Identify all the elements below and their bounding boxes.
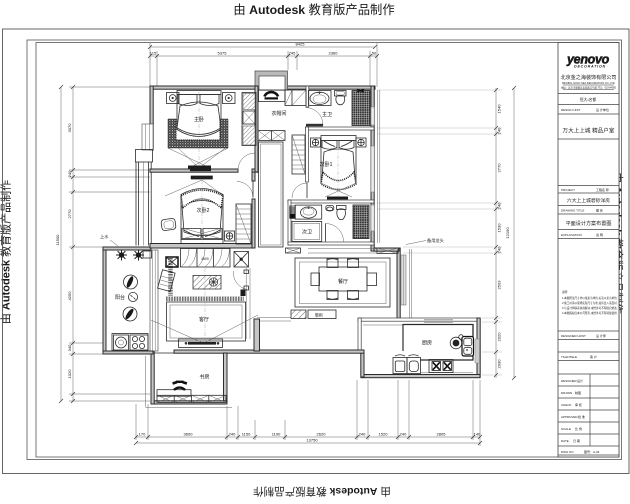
svg-text:APPROVED: APPROVED bbox=[561, 415, 579, 419]
svg-text:DESIGN UNIT: DESIGN UNIT bbox=[561, 108, 581, 112]
svg-text:工程名 称: 工程名 称 bbox=[596, 187, 609, 192]
svg-text:EXPLANATION: EXPLANATION bbox=[561, 233, 582, 237]
svg-text:BEIJING GOLD SEA DECORATION CO: BEIJING GOLD SEA DECORATION CO.,LTD bbox=[562, 81, 615, 85]
svg-text:审 核: 审 核 bbox=[575, 402, 582, 407]
svg-text:DESIGNER: DESIGNER bbox=[561, 379, 578, 383]
svg-text:240: 240 bbox=[400, 432, 407, 437]
svg-text:2360: 2360 bbox=[329, 51, 339, 56]
svg-text:六大上上城碧砂洋房: 六大上上城碧砂洋房 bbox=[567, 197, 610, 204]
svg-text:13750: 13750 bbox=[306, 438, 318, 443]
svg-text:240: 240 bbox=[497, 246, 502, 253]
svg-text:240: 240 bbox=[359, 432, 366, 437]
svg-text:115: 115 bbox=[150, 51, 157, 56]
svg-text:CHECK: CHECK bbox=[561, 403, 572, 407]
svg-text:次卫: 次卫 bbox=[302, 229, 312, 236]
svg-text:说 明: 说 明 bbox=[596, 232, 603, 237]
svg-text:由 Autodesk 教育版产品制作: 由 Autodesk 教育版产品制作 bbox=[0, 180, 13, 324]
svg-text:由 Autodesk 教育版产品制作: 由 Autodesk 教育版产品制作 bbox=[253, 485, 391, 498]
svg-text:恒大•名都: 恒大•名都 bbox=[580, 97, 597, 102]
svg-text:4600: 4600 bbox=[201, 257, 209, 261]
svg-text:DESIGNER HOST: DESIGNER HOST bbox=[561, 334, 586, 338]
svg-text:3070: 3070 bbox=[67, 123, 72, 133]
svg-text:主卧: 主卧 bbox=[194, 116, 204, 123]
svg-text:2805: 2805 bbox=[437, 432, 447, 437]
svg-text:2770: 2770 bbox=[497, 163, 502, 173]
svg-text:比 例: 比 例 bbox=[575, 426, 582, 431]
svg-text:主卫: 主卫 bbox=[322, 111, 332, 118]
svg-text:1540: 1540 bbox=[497, 104, 502, 114]
svg-text:3600: 3600 bbox=[184, 432, 194, 437]
svg-text:140: 140 bbox=[474, 432, 481, 437]
svg-text:2770: 2770 bbox=[67, 209, 72, 219]
svg-text:340: 340 bbox=[67, 344, 72, 351]
svg-text:餐厅: 餐厅 bbox=[338, 278, 348, 285]
svg-text:说明:: 说明: bbox=[562, 290, 568, 294]
svg-text:240: 240 bbox=[497, 202, 502, 209]
svg-text:平面设计方案布置图: 平面设计方案布置图 bbox=[566, 220, 612, 227]
svg-text:1020: 1020 bbox=[67, 369, 72, 379]
svg-text:1190: 1190 bbox=[272, 432, 281, 437]
svg-text:50: 50 bbox=[372, 51, 377, 56]
svg-text:1530: 1530 bbox=[497, 223, 502, 233]
svg-text:次卧2: 次卧2 bbox=[197, 207, 210, 214]
svg-text:衣帽间: 衣帽间 bbox=[271, 110, 286, 117]
svg-text:备用龙头: 备用龙头 bbox=[427, 237, 444, 244]
svg-text:图号：A-03: 图号：A-03 bbox=[584, 449, 600, 454]
svg-text:4250: 4250 bbox=[67, 291, 72, 301]
svg-text:DECORATION: DECORATION bbox=[574, 65, 606, 69]
svg-text:8425: 8425 bbox=[296, 42, 306, 47]
svg-text:DRAWING TITLE: DRAWING TITLE bbox=[561, 209, 584, 213]
svg-text:图 名: 图 名 bbox=[596, 208, 603, 213]
svg-text:TILENTELE: TILENTELE bbox=[561, 355, 577, 359]
svg-text:DATE: DATE bbox=[561, 439, 569, 443]
svg-text:2020: 2020 bbox=[497, 332, 502, 342]
svg-text:阳台: 阳台 bbox=[115, 294, 125, 301]
svg-text:设 计单位: 设 计单位 bbox=[596, 107, 609, 112]
svg-text:DRAWN: DRAWN bbox=[561, 391, 572, 395]
svg-text:万大上上城 精品户室: 万大上上城 精品户室 bbox=[563, 127, 615, 135]
svg-text:次卧1: 次卧1 bbox=[320, 161, 333, 168]
svg-text:240: 240 bbox=[497, 127, 502, 134]
svg-text:厨房: 厨房 bbox=[422, 340, 432, 347]
svg-text:书房: 书房 bbox=[199, 374, 209, 381]
svg-text:设计: 设计 bbox=[577, 378, 583, 383]
svg-text:DWG NO: DWG NO bbox=[561, 450, 574, 454]
svg-text:SCALE: SCALE bbox=[561, 427, 571, 431]
svg-text:5375: 5375 bbox=[218, 51, 228, 56]
svg-text:11500: 11500 bbox=[55, 234, 60, 246]
svg-text:170: 170 bbox=[139, 432, 146, 437]
svg-text:2620: 2620 bbox=[317, 432, 327, 437]
svg-text:制图: 制图 bbox=[575, 390, 581, 395]
svg-text:3.与设计师联系协商解决,未经许可不得擅自修改;: 3.与设计师联系协商解决,未经许可不得擅自修改; bbox=[562, 306, 618, 310]
svg-text:1.本图所注尺寸均以毫米为单位,标高以米为单位;: 1.本图所注尺寸均以毫米为单位,标高以米为单位; bbox=[562, 296, 618, 300]
svg-text:1520: 1520 bbox=[379, 432, 389, 437]
svg-text:1150: 1150 bbox=[242, 432, 251, 437]
svg-text:2030: 2030 bbox=[497, 359, 502, 369]
svg-text:客 户: 客 户 bbox=[590, 354, 597, 359]
svg-text:日 期: 日 期 bbox=[573, 438, 580, 443]
svg-text:PROJECT: PROJECT bbox=[561, 188, 575, 192]
svg-text:客厅: 客厅 bbox=[199, 316, 209, 323]
svg-text:上水: 上水 bbox=[100, 233, 109, 239]
svg-text:地址：北京市朝阳区北苑路13号院 TEL：010-84955: 地址：北京市朝阳区北苑路13号院 TEL：010-84955 bbox=[561, 86, 617, 90]
svg-text:批 准: 批 准 bbox=[578, 414, 585, 419]
svg-text:12190: 12190 bbox=[505, 227, 510, 239]
svg-text:2.施工时请以现场实际尺寸为准,如有出入请及时;: 2.施工时请以现场实际尺寸为准,如有出入请及时; bbox=[562, 301, 618, 305]
svg-text:245: 245 bbox=[289, 51, 296, 56]
svg-text:由 Autodesk 教育版产品制作: 由 Autodesk 教育版产品制作 bbox=[233, 2, 394, 17]
svg-text:240: 240 bbox=[67, 170, 72, 177]
svg-text:240: 240 bbox=[229, 432, 236, 437]
svg-text:设 计师: 设 计师 bbox=[596, 333, 606, 338]
svg-text:4.本图版权归本公司所有,未经许可不得转载使用.: 4.本图版权归本公司所有,未经许可不得转载使用. bbox=[562, 311, 618, 315]
svg-text:鞋柜: 鞋柜 bbox=[315, 312, 323, 318]
svg-text:2503: 2503 bbox=[497, 280, 502, 290]
svg-text:北京金之海装饰有限公司: 北京金之海装饰有限公司 bbox=[560, 74, 616, 81]
